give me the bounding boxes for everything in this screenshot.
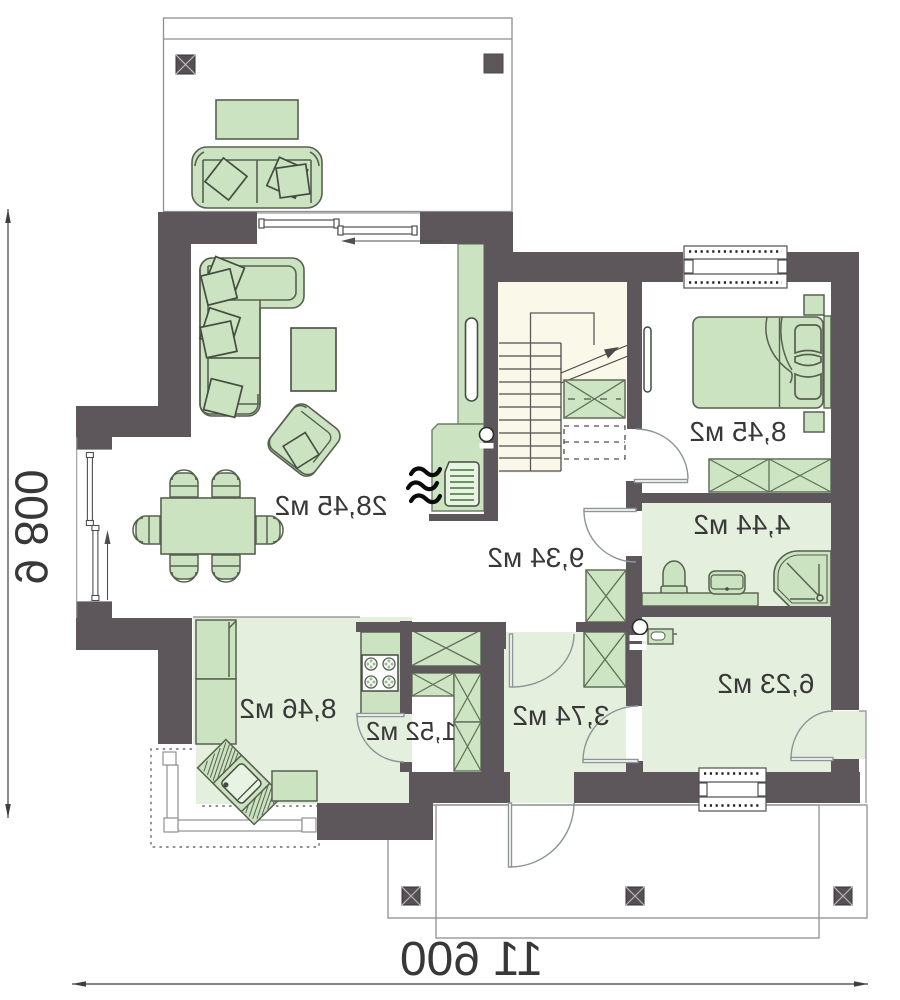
svg-text:6,23 м2: 6,23 м2 xyxy=(717,668,814,699)
svg-text:8,45 м2: 8,45 м2 xyxy=(689,416,786,447)
svg-text:28,45 м2: 28,45 м2 xyxy=(275,490,388,521)
svg-text:9,34 м2: 9,34 м2 xyxy=(487,542,584,573)
svg-text:8,46 м2: 8,46 м2 xyxy=(239,693,336,724)
svg-text:11 600: 11 600 xyxy=(400,933,543,986)
svg-text:9 800: 9 800 xyxy=(6,469,58,584)
svg-text:3,74 м2: 3,74 м2 xyxy=(512,700,609,731)
svg-text:1,52 м2: 1,52 м2 xyxy=(366,716,456,746)
svg-text:4,44 м2: 4,44 м2 xyxy=(693,509,790,540)
